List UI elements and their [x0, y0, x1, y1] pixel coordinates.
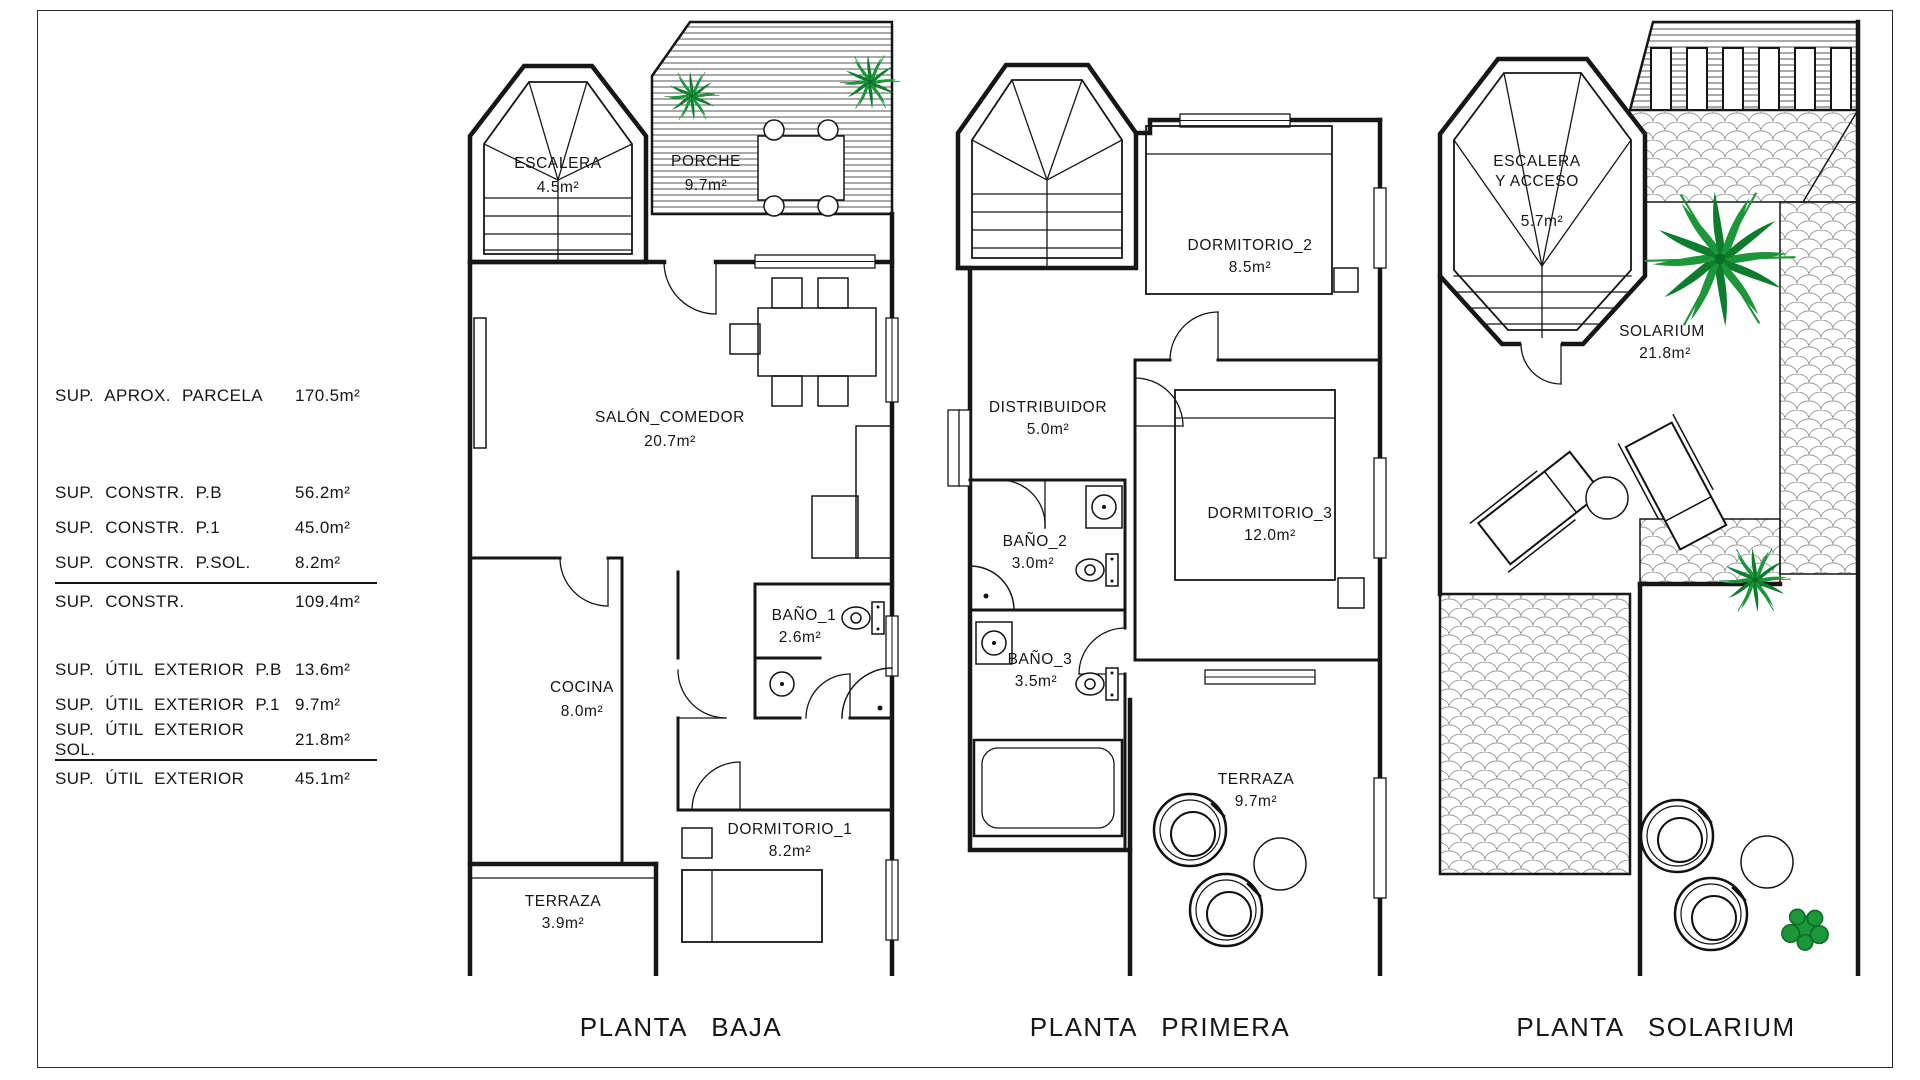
- legend-value: 8.2m²: [295, 553, 377, 573]
- legend-label: SUP. CONSTR. P.SOL.: [55, 553, 295, 573]
- room-label-escalera: ESCALERA: [514, 155, 602, 172]
- palm-plant-icon: [1646, 190, 1795, 328]
- toilet-icon: [1076, 554, 1118, 586]
- bush-plant-icon: [1782, 909, 1828, 950]
- room-area-bano1: 2.6m²: [779, 629, 822, 646]
- sink-icon: [770, 672, 794, 696]
- legend-row: SUP. CONSTR. P.SOL. 8.2m²: [55, 545, 377, 580]
- room-label-dormitorio1: DORMITORIO_1: [728, 821, 853, 838]
- porch-table: [758, 136, 844, 200]
- room-label-bano1: BAÑO_1: [772, 607, 837, 624]
- room-label-distribuidor: DISTRIBUIDOR: [989, 399, 1107, 416]
- legend-row: SUP. CONSTR. 109.4m²: [55, 584, 377, 619]
- room-label-porche: PORCHE: [671, 153, 741, 170]
- legend-label: SUP. ÚTIL EXTERIOR SOL.: [55, 720, 295, 760]
- legend-label: SUP. ÚTIL EXTERIOR: [55, 769, 295, 789]
- legend-value: 109.4m²: [295, 592, 377, 612]
- legend-value: 13.6m²: [295, 660, 377, 680]
- legend-value: 170.5m²: [295, 386, 377, 406]
- room-label-dormitorio2: DORMITORIO_2: [1188, 237, 1313, 254]
- legend-value: 9.7m²: [295, 695, 377, 715]
- room-area-escalera-acceso: 5.7m²: [1521, 213, 1564, 230]
- plan-title-planta-solarium: PLANTA SOLARIUM: [1446, 1012, 1866, 1043]
- legend-row: SUP. ÚTIL EXTERIOR P.B 13.6m²: [55, 652, 377, 687]
- round-chair-icon: [1154, 794, 1226, 866]
- pergola: [1630, 22, 1858, 110]
- plan-title-planta-baja: PLANTA BAJA: [471, 1012, 891, 1043]
- room-area-salon: 20.7m²: [644, 433, 696, 450]
- plan-title-planta-primera: PLANTA PRIMERA: [950, 1012, 1370, 1043]
- room-area-dormitorio3: 12.0m²: [1244, 527, 1296, 544]
- round-table-icon: [1586, 477, 1628, 519]
- outer-walls: [470, 214, 894, 976]
- dormitorio3-furniture: [1175, 390, 1364, 608]
- room-label-escalera-acceso2: Y ACCESO: [1495, 173, 1579, 190]
- legend-row: SUP. APROX. PARCELA 170.5m²: [55, 378, 377, 413]
- legend-row: SUP. CONSTR. P.1 45.0m²: [55, 510, 377, 545]
- room-label-bano3: BAÑO_3: [1008, 651, 1073, 668]
- legend-value: 45.1m²: [295, 769, 377, 789]
- surface-legend: SUP. APROX. PARCELA 170.5m² SUP. CONSTR.…: [55, 378, 377, 796]
- interior-walls: [470, 558, 892, 864]
- room-label-cocina: COCINA: [550, 679, 614, 696]
- room-area-terraza2: 9.7m²: [1235, 793, 1278, 810]
- floor-plan-planta-primera: DORMITORIO_2 8.5m² DISTRIBUIDOR 5.0m² BA…: [940, 18, 1400, 976]
- room-area-solarium: 21.8m²: [1639, 345, 1691, 362]
- room-area-porche: 9.7m²: [685, 177, 728, 194]
- room-area-dormitorio2: 8.5m²: [1229, 259, 1272, 276]
- legend-value: 21.8m²: [295, 730, 377, 750]
- room-label-escalera-acceso: ESCALERA: [1493, 153, 1581, 170]
- room-label-bano2: BAÑO_2: [1003, 533, 1068, 550]
- round-table-icon: [1741, 836, 1793, 888]
- floor-plan-planta-baja: ESCALERA 4.5m² PORCHE 9.7m² SALÓN_COMEDO…: [460, 18, 910, 976]
- bathtub-icon: [974, 740, 1122, 836]
- interior-doors: [1000, 312, 1218, 674]
- sink-icon: [1092, 495, 1116, 519]
- round-chair-icon: [1641, 800, 1713, 872]
- room-area-dormitorio1: 8.2m²: [769, 843, 812, 860]
- terrace-furniture: [1641, 800, 1828, 950]
- room-area-escalera: 4.5m²: [537, 179, 580, 196]
- legend-label: SUP. APROX. PARCELA: [55, 386, 295, 406]
- legend-row: SUP. ÚTIL EXTERIOR 45.1m²: [55, 761, 377, 796]
- room-area-distribuidor: 5.0m²: [1027, 421, 1070, 438]
- sink-icon: [982, 631, 1006, 655]
- entrance-door: [664, 262, 716, 314]
- room-area-terraza: 3.9m²: [542, 915, 585, 932]
- room-label-dormitorio3: DORMITORIO_3: [1208, 505, 1333, 522]
- room-area-bano3: 3.5m²: [1015, 673, 1058, 690]
- toilet-icon: [1076, 668, 1118, 700]
- toilet-icon: [842, 602, 884, 634]
- round-chair-icon: [1675, 878, 1747, 950]
- room-area-bano2: 3.0m²: [1012, 555, 1055, 572]
- shower-icon: [970, 566, 1014, 610]
- round-table-icon: [1254, 838, 1306, 890]
- legend-row: SUP. CONSTR. P.B 56.2m²: [55, 475, 377, 510]
- terraza-furniture: [1154, 794, 1306, 946]
- legend-label: SUP. CONSTR.: [55, 592, 295, 612]
- legend-label: SUP. CONSTR. P.B: [55, 483, 295, 503]
- room-label-terraza2: TERRAZA: [1218, 771, 1295, 788]
- room-area-cocina: 8.0m²: [561, 703, 604, 720]
- legend-value: 56.2m²: [295, 483, 377, 503]
- window-left: [948, 410, 970, 486]
- room-label-salon: SALÓN_COMEDOR: [595, 409, 745, 426]
- room-label-terraza: TERRAZA: [525, 893, 602, 910]
- round-chair-icon: [1190, 874, 1262, 946]
- legend-row: SUP. ÚTIL EXTERIOR SOL. 21.8m²: [55, 722, 377, 757]
- legend-label: SUP. ÚTIL EXTERIOR P.1: [55, 695, 295, 715]
- escalera-tower: [958, 65, 1136, 268]
- legend-value: 45.0m²: [295, 518, 377, 538]
- room-label-solarium: SOLARIUM: [1619, 323, 1705, 340]
- sun-lounger-icon: [1619, 415, 1731, 552]
- legend-label: SUP. ÚTIL EXTERIOR P.B: [55, 660, 295, 680]
- sun-lounger-icon: [1470, 448, 1604, 572]
- legend-row: SUP. ÚTIL EXTERIOR P.1 9.7m²: [55, 687, 377, 722]
- floor-plan-planta-solarium: ESCALERA Y ACCESO 5.7m² SOLARIUM 21.8m²: [1425, 14, 1890, 976]
- legend-label: SUP. CONSTR. P.1: [55, 518, 295, 538]
